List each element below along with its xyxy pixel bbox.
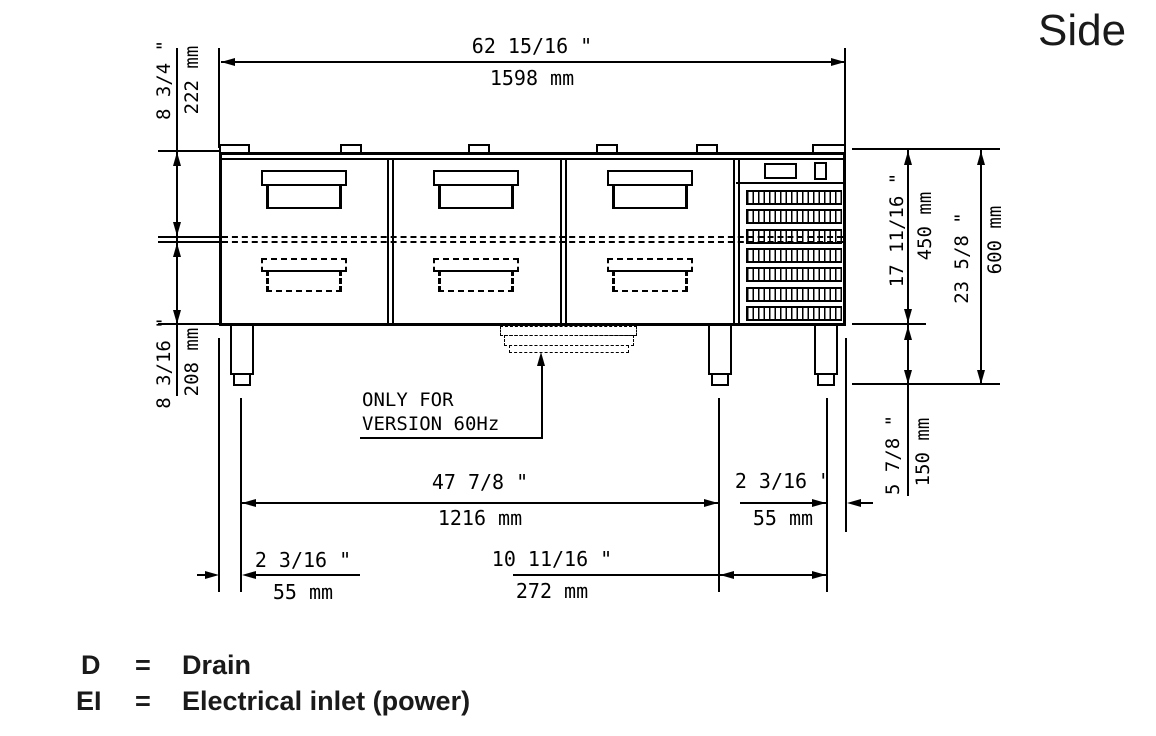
arrowhead-left-icon [242,571,256,579]
arrowhead-down-icon [904,370,912,384]
dim-edge-to-leg-inches: 2 3/16 " [228,548,378,572]
drain-pan-tier-3 [509,345,629,353]
worktop-line [222,158,843,160]
grille-row [746,267,842,282]
grille-row [746,190,842,205]
arrowhead-left-icon [242,499,256,507]
control-display [764,163,797,179]
arrowhead-up-icon [173,152,181,166]
dimension-line-overall-height [980,150,982,384]
grille-row [746,306,842,321]
drawer-handle-recess [438,184,514,209]
dim-lower-section-mm: 208 mm [181,302,201,422]
dim-lower-section-inches: 8 3/16 " [153,303,173,423]
note-line-2: VERSION 60Hz [362,413,499,435]
dim-overall-width-inches: 62 15/16 " [432,34,632,58]
dim-leg-to-edge-mm: 55 mm [708,506,858,530]
arrowhead-right-icon [205,571,219,579]
dim-upper-section-inches: 8 3/4 " [153,20,173,140]
extension-line-leg3-center [826,398,828,592]
extension-line-mid-lower [158,241,219,243]
view-title: Side [1038,6,1126,56]
leg-2-foot [711,373,729,386]
leg-3-foot [817,373,835,386]
extension-line-unit-left-edge [218,338,220,592]
arrowhead-left-icon [720,571,734,579]
legend-symbol-electrical: EI [76,686,102,717]
control-panel-line [736,182,843,184]
dim-upper-section-mm: 222 mm [181,20,201,140]
legend-equals: = [135,650,151,681]
arrowhead-left-icon [221,58,235,66]
dim-overall-height-mm: 600 mm [984,180,1004,300]
dim-leg-span-inches: 47 7/8 " [380,470,580,494]
dim-overall-height-inches: 23 5/8 " [951,198,971,318]
dimension-tail [197,574,205,576]
legend-symbol-drain: D [81,650,101,681]
arrowhead-down-icon [173,222,181,236]
arrowhead-right-icon [831,58,845,66]
dim-rear-leg-gap-inches: 10 11/16 " [462,547,642,571]
extension-line-leg2-center [718,398,720,592]
dim-leg-to-edge-inches: 2 3/16 " [708,469,858,493]
leg-1-foot [233,373,251,386]
note-line-1: ONLY FOR [362,389,454,411]
leg-1 [230,324,254,375]
arrowhead-up-icon [904,326,912,340]
extension-line-top-left [218,48,220,148]
hidden-drawer-handle-recess [438,270,514,292]
dim-leg-height-mm: 150 mm [912,392,932,512]
drawer-handle-recess [266,184,342,209]
leg-3 [814,324,838,375]
arrowhead-right-icon [812,571,826,579]
dimension-line-rear-leg-gap [513,574,827,576]
arrowhead-up-icon [173,243,181,257]
dimension-line-overall-width [221,61,845,63]
legend-equals: = [135,686,151,717]
leader-line-horizontal [360,437,543,439]
dim-rear-leg-gap-mm: 272 mm [462,579,642,603]
hidden-drawer-handle-recess [612,270,688,292]
grille-row [746,209,842,224]
ventilation-grille [746,190,842,321]
dimension-line-edge-to-leg [256,574,360,576]
dimension-tail [861,502,873,504]
control-switch [814,162,827,180]
grille-row [746,229,842,244]
dim-leg-span-mm: 1216 mm [380,506,580,530]
extension-line-right-mid [852,323,926,325]
dim-leg-height-inches: 5 7/8 " [882,395,902,515]
arrowhead-down-icon [904,309,912,323]
legend-label-drain: Drain [182,650,251,681]
arrowhead-up-icon [977,151,985,165]
dim-overall-width-mm: 1598 mm [432,66,632,90]
leader-line-vertical [541,364,543,438]
extension-line-mid-upper [158,236,219,238]
technical-drawing-canvas: Side 62 15/16 " 1598 mm 8 3/4 " 222 mm 8… [0,0,1156,736]
dimension-line-leg-span [242,502,718,504]
extension-line-right-top [852,148,1000,150]
extension-line-unit-top [158,150,219,152]
drawer-handle-recess [612,184,688,209]
leg-2 [708,324,732,375]
hidden-drawer-handle-recess [266,270,342,292]
legend-label-electrical: Electrical inlet (power) [182,686,470,717]
dim-edge-to-leg-mm: 55 mm [228,580,378,604]
dim-body-height-inches: 17 11/16 " [886,170,906,290]
arrowhead-up-icon [904,151,912,165]
arrowhead-down-icon [977,370,985,384]
grille-row [746,287,842,302]
dim-body-height-mm: 450 mm [914,166,934,286]
grille-row [746,248,842,263]
